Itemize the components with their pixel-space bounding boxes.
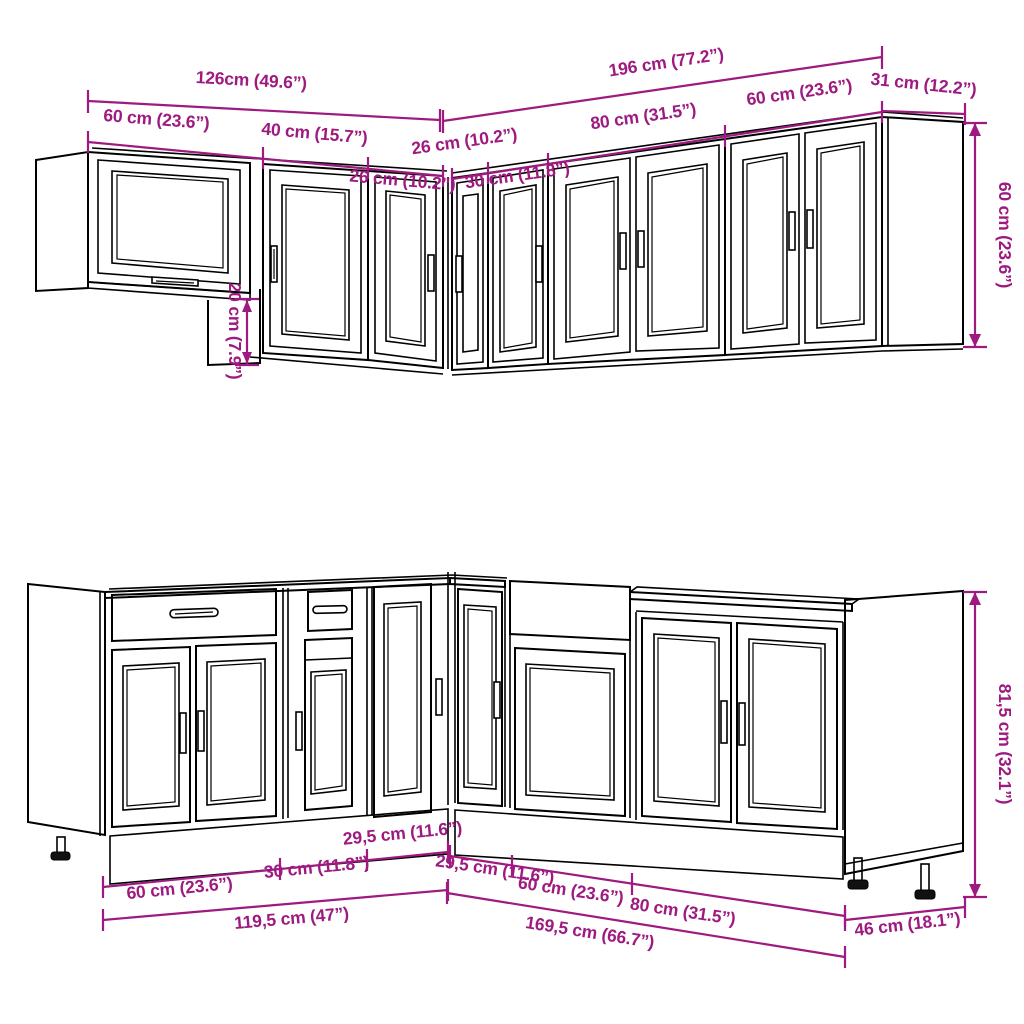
- kitchen-dimension-diagram: 126cm (49.6”) 196 cm (77.2”) 31 cm (12.2…: [0, 0, 1024, 1024]
- door-handle: [536, 246, 542, 282]
- wall-side-panel: [882, 117, 963, 346]
- dim-label-60-width: 60 cm (23.6”): [745, 75, 853, 110]
- wall-cabinet-corner-right-26: [452, 173, 488, 370]
- door-handle: [180, 713, 186, 753]
- dim-label-base-height: 81,5 cm (32.1”): [995, 684, 1015, 805]
- wall-cabinet-glass-60: [36, 152, 250, 300]
- door-handle: [807, 210, 813, 248]
- base-right-side-panel: [845, 591, 963, 899]
- door-handle: [620, 233, 626, 269]
- wall-cabinet-60: [725, 117, 882, 355]
- base-cabinets-drawing: [28, 572, 963, 899]
- dim-label-corner-right-26: 26 cm (10.2”): [410, 124, 518, 159]
- door-handle: [789, 212, 795, 250]
- base-cabinet-80: [630, 587, 859, 830]
- door-handle: [436, 679, 442, 715]
- door-handle: [494, 682, 500, 718]
- door-handle: [456, 256, 462, 292]
- dim-label-30: 30 cm (11.8”): [263, 852, 370, 882]
- wall-cabinet-30: [488, 164, 548, 368]
- door-handle: [428, 255, 434, 291]
- dim-label-80-width: 80 cm (31.5”): [589, 99, 697, 134]
- dim-label-total-left: 126cm (49.6”): [195, 67, 307, 93]
- door-handle: [638, 231, 644, 267]
- dim-label-glass-width: 60 cm (23.6”): [103, 105, 211, 133]
- base-cabinet-corner-right: [458, 581, 510, 808]
- wall-cabinet-corner-left-26: [368, 171, 443, 368]
- dim-label-80: 80 cm (31.5”): [629, 893, 737, 929]
- door-handle: [296, 712, 302, 750]
- door-handle: [198, 711, 204, 751]
- dim-label-total-right: 196 cm (77.2”): [607, 44, 725, 81]
- dim-label-wall-depth: 31 cm (12.2”): [870, 69, 978, 100]
- drawer-handle: [313, 606, 347, 614]
- base-sink-cabinet-60: [510, 581, 630, 818]
- diagram-canvas: 126cm (49.6”) 196 cm (77.2”) 31 cm (12.2…: [0, 0, 1024, 1024]
- dim-label-wall-height: 60 cm (23.6”): [995, 182, 1015, 288]
- dim-label-60-right: 60 cm (23.6”): [517, 872, 625, 908]
- dim-label-glass-drop: 20 cm (7.9”): [225, 283, 245, 380]
- door-handle: [739, 703, 745, 745]
- door-handle: [721, 701, 727, 743]
- base-cabinets-dimensions: 29,5 cm (11.6”) 60 cm (23.6”) 30 cm (11.…: [103, 592, 1015, 968]
- base-left-side-panel: [28, 584, 105, 860]
- dim-label-40-width: 40 cm (15.7”): [261, 118, 369, 147]
- base-cabinet-60-left: [112, 588, 288, 827]
- wall-cabinet-80: [548, 139, 725, 364]
- dim-label-run-right-total: 169,5 cm (66.7”): [524, 912, 656, 952]
- base-cabinet-30: [296, 587, 372, 816]
- wall-cabinet-40: [263, 164, 368, 360]
- dim-label-corner-left: 29,5 cm (11.6”): [342, 817, 463, 848]
- dim-label-60-left: 60 cm (23.6”): [126, 873, 234, 903]
- base-cabinet-corner-left: [374, 572, 455, 817]
- wall-cabinets-drawing: [36, 112, 963, 375]
